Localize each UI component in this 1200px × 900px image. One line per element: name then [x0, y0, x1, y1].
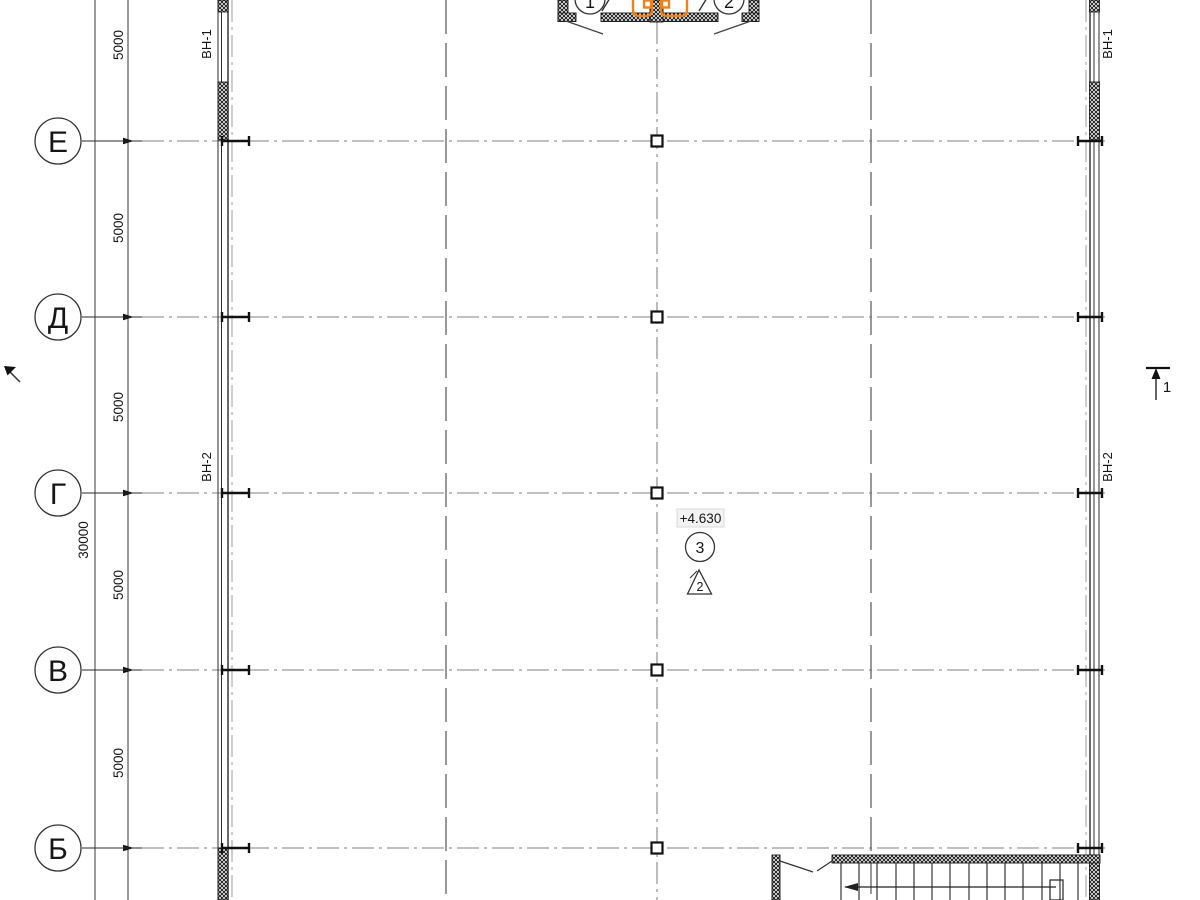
node-circle-label: 3 — [696, 540, 705, 557]
dim-label-span-4: 5000 — [111, 570, 126, 600]
axis-bubble-D: Д — [35, 294, 81, 340]
node-triangle-label: 2 — [697, 580, 704, 594]
axis-bubble-label: Д — [48, 302, 68, 335]
elevation-label: +4.630 — [680, 511, 722, 526]
left-wall: ВН-1 ВН-2 — [199, 0, 249, 900]
wall-pier — [218, 0, 228, 12]
column-marker — [652, 843, 663, 854]
window-mark-right-top: ВН-1 — [1100, 29, 1115, 59]
window-mark-left-top: ВН-1 — [199, 29, 214, 59]
stair-treads — [841, 863, 1078, 900]
stair-wall-left — [772, 855, 780, 900]
entrance-corner-right-h — [742, 13, 759, 22]
axis-bubble-label: Б — [48, 833, 68, 866]
detail-callout-1-label: 1 — [585, 0, 595, 12]
axis-bubble-E: Е — [35, 118, 81, 164]
column-tie — [222, 312, 249, 322]
wall-pier — [1090, 0, 1100, 12]
section-mark-right: 1 — [1146, 368, 1171, 400]
dim-label-span-2: 5000 — [111, 213, 126, 243]
callout-tick — [699, 0, 707, 11]
detail-callout-1: 1 — [575, 0, 605, 14]
column-marker — [652, 665, 663, 676]
door-swing — [817, 861, 832, 871]
canopy-edge-left — [566, 21, 603, 34]
column-marker — [652, 488, 663, 499]
axis-bubble-label: Г — [50, 478, 66, 511]
stair-direction-arrow — [844, 883, 858, 891]
wall-pier — [218, 82, 228, 140]
door-swing — [780, 861, 813, 872]
axis-bubble-G: Г — [35, 470, 81, 516]
window-mark-right-mid: ВН-2 — [1100, 452, 1115, 482]
detail-callout-2-label: 2 — [724, 0, 734, 12]
window-mark-left-mid: ВН-2 — [199, 452, 214, 482]
section-mark-left — [4, 366, 20, 382]
section-mark-right-label: 1 — [1163, 379, 1171, 396]
wall-pier — [218, 848, 228, 900]
axis-bubbles: Е Д Г В Б — [35, 118, 81, 871]
column-marker — [652, 136, 663, 147]
dimension-labels: 5000 5000 5000 5000 5000 30000 — [76, 30, 126, 778]
wall-pier — [1090, 82, 1100, 140]
axis-bubble-B: Б — [35, 825, 81, 871]
column-tie — [222, 665, 249, 675]
dim-label-span-5: 5000 — [111, 748, 126, 778]
dim-label-total: 30000 — [76, 521, 91, 559]
entrance-vestibule: 1 2 — [558, 0, 759, 34]
axis-bubble-label: Е — [48, 126, 68, 159]
stair-rail — [1050, 880, 1063, 900]
door-hinge-left — [644, 1, 651, 8]
right-wall: ВН-1 ВН-2 — [1078, 0, 1115, 900]
floor-plan-canvas[interactable]: 5000 5000 5000 5000 5000 30000 — [0, 0, 1200, 900]
stairs — [772, 855, 1100, 900]
axis-grid-horizontal — [82, 141, 1105, 848]
entrance-corner-left-h — [558, 13, 576, 22]
column-marker — [652, 312, 663, 323]
door-hinge-right — [662, 1, 669, 8]
level-node-marks: +4.630 3 2 — [677, 509, 724, 594]
axis-bubble-V: В — [35, 647, 81, 693]
dim-label-span-3: 5000 — [111, 392, 126, 422]
axis-bubble-label: В — [48, 655, 68, 688]
detail-callout-2: 2 — [714, 0, 744, 14]
canopy-edge-right — [714, 21, 751, 34]
dim-label-span-1: 5000 — [111, 30, 126, 60]
column-tie — [222, 488, 249, 498]
stair-wall-top — [832, 855, 1100, 863]
